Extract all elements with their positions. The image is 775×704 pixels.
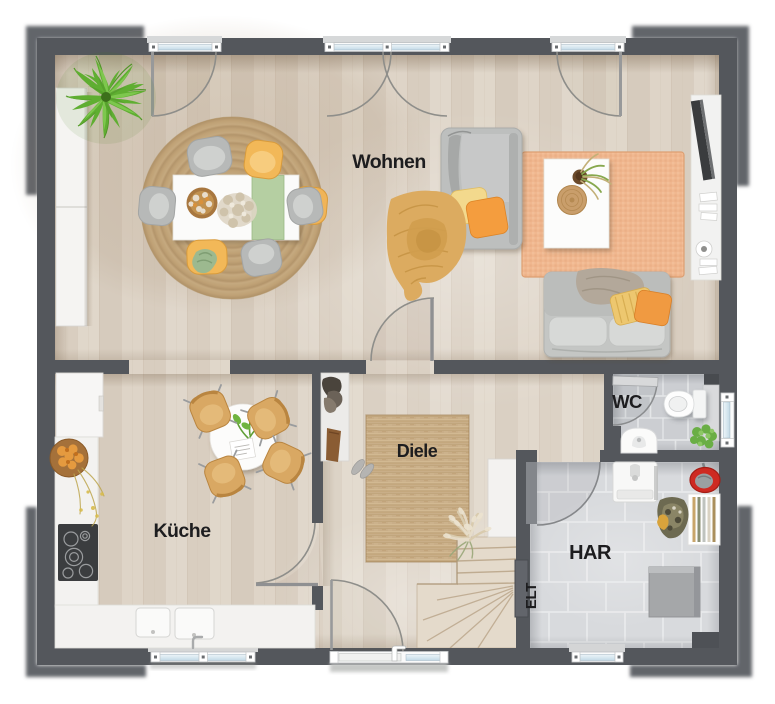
svg-text:ELT: ELT: [523, 583, 540, 609]
svg-text:Küche: Küche: [153, 520, 211, 542]
svg-text:Wohnen: Wohnen: [352, 151, 426, 173]
svg-text:Diele: Diele: [397, 441, 438, 461]
svg-text:HAR: HAR: [569, 542, 612, 564]
svg-text:WC: WC: [612, 391, 642, 412]
